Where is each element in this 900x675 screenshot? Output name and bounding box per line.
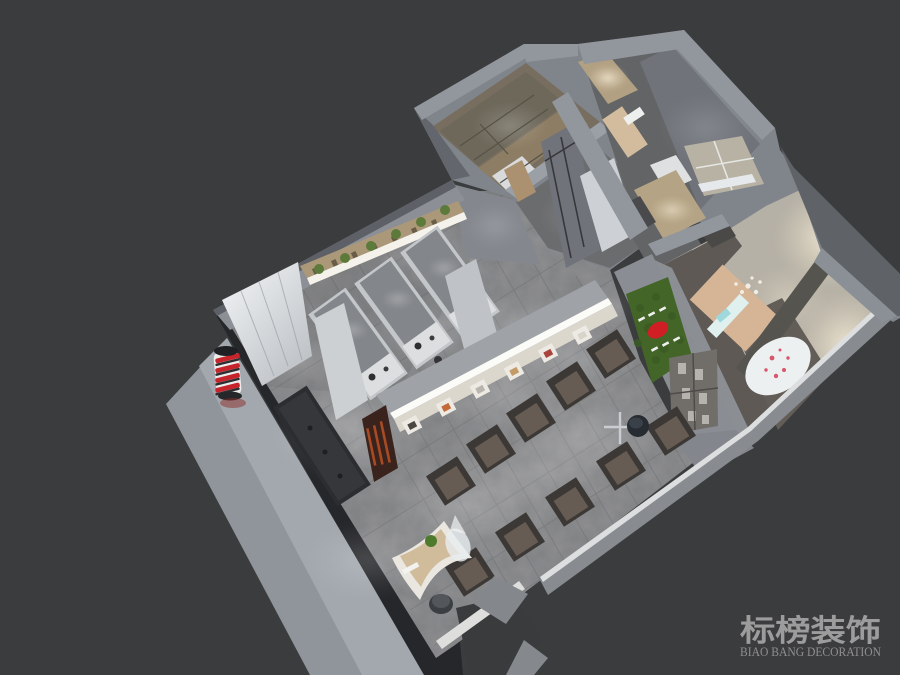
svg-text:标榜装饰: 标榜装饰 — [740, 615, 881, 648]
svg-text:BIAO BANG DECORATION: BIAO BANG DECORATION — [740, 645, 881, 659]
